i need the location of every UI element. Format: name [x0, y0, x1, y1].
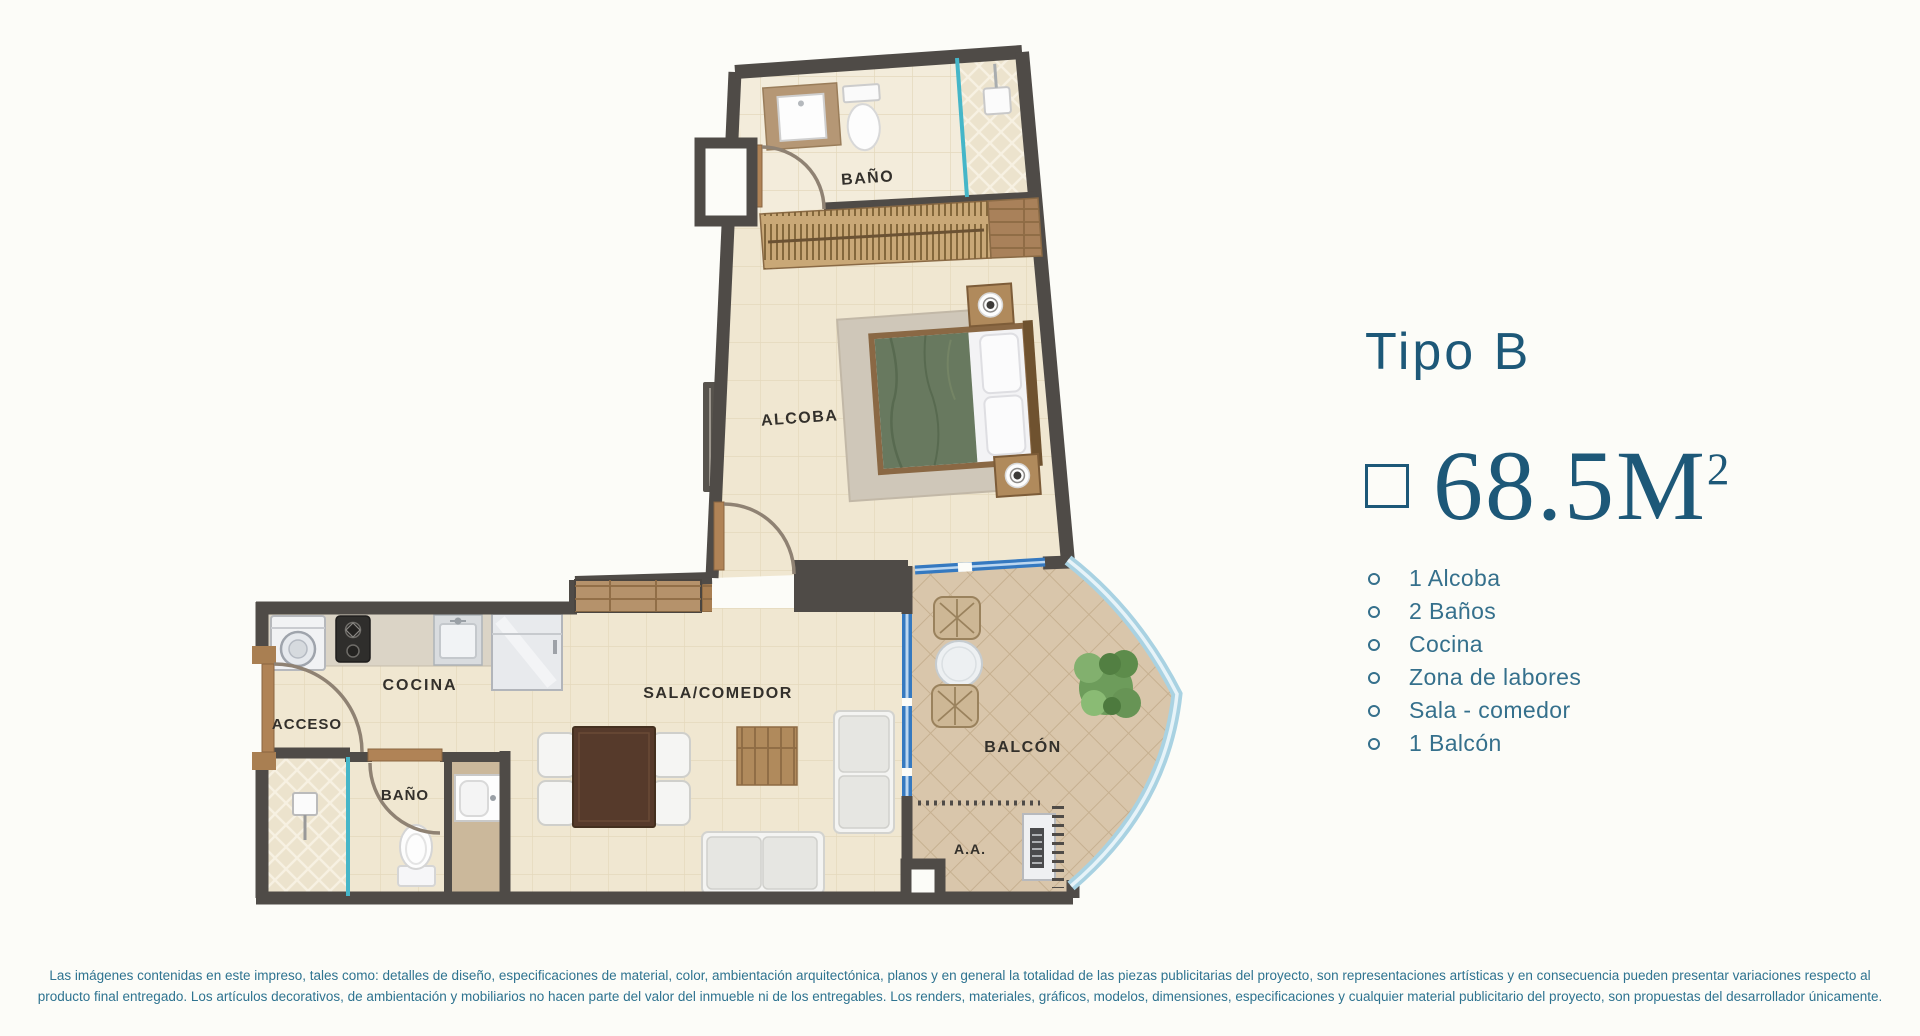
- disclaimer-line: Las imágenes contenidas en este impreso,…: [0, 965, 1920, 986]
- bullet-icon: [1368, 672, 1380, 684]
- bullet-icon: [1368, 639, 1380, 651]
- feature-label: Zona de labores: [1409, 664, 1581, 691]
- dining-chair: [652, 733, 690, 777]
- room-label-balcon: BALCÓN: [984, 737, 1061, 756]
- entry-door-frame: [252, 646, 276, 664]
- feature-label: Cocina: [1409, 631, 1483, 658]
- disclaimer-line: producto final entregado. Los artículos …: [0, 986, 1920, 1007]
- bedroom-door-leaf: [714, 502, 724, 570]
- pillow: [980, 333, 1022, 394]
- feature-item: 1 Alcoba: [1363, 562, 1581, 595]
- bullet-icon: [1368, 573, 1380, 585]
- stove-icon: [336, 616, 370, 662]
- sofa-right: [834, 711, 894, 833]
- dining-chair: [538, 781, 576, 825]
- balcony-chair: [932, 685, 978, 727]
- room-label-cocina: COCINA: [382, 677, 457, 694]
- entry-door-frame: [252, 752, 276, 770]
- dining-chair: [652, 781, 690, 825]
- room-label-acceso: ACCESO: [272, 716, 342, 733]
- washer-icon: [271, 616, 325, 670]
- dining-chair: [538, 733, 576, 777]
- area-row: 68.5M2: [1365, 436, 1731, 536]
- bullet-icon: [1368, 606, 1380, 618]
- balcony-table: [936, 641, 982, 687]
- balcony-chair: [934, 597, 980, 639]
- kitchen-sink-icon: [434, 615, 482, 665]
- fridge-icon: [492, 614, 562, 690]
- feature-label: 2 Baños: [1409, 598, 1496, 625]
- info-panel: Tipo B 68.5M2 1 Alcoba 2 Baños Cocina Zo…: [1363, 0, 1883, 960]
- entry-door-leaf: [262, 664, 274, 752]
- wall-notch: [700, 143, 752, 221]
- closet-sala: [575, 580, 701, 612]
- area-value: 68.5M2: [1433, 436, 1731, 536]
- wall-block: [794, 560, 908, 612]
- bullet-icon: [1368, 738, 1380, 750]
- feature-label: Sala - comedor: [1409, 697, 1571, 724]
- feature-item: Sala - comedor: [1363, 694, 1581, 727]
- feature-list: 1 Alcoba 2 Baños Cocina Zona de labores …: [1363, 562, 1581, 760]
- bed-blanket: [875, 333, 978, 469]
- bath-bottom-door-sill: [368, 749, 442, 761]
- room-label-bano-bottom: BAÑO: [381, 786, 429, 804]
- disclaimer: Las imágenes contenidas en este impreso,…: [0, 965, 1920, 1007]
- nightstand: [967, 283, 1014, 326]
- toilet-icon: [398, 825, 435, 886]
- feature-item: 1 Balcón: [1363, 727, 1581, 760]
- sala-balcony-sliding-door: [902, 614, 912, 796]
- plan-type-title: Tipo B: [1365, 324, 1531, 381]
- room-label-aa: A.A.: [954, 841, 986, 857]
- sofa-bottom: [702, 832, 824, 894]
- ac-unit-icon: [1023, 814, 1055, 880]
- area-square-icon: [1365, 464, 1409, 508]
- dining-table: [573, 727, 655, 827]
- dining-group: [538, 727, 690, 827]
- bullet-icon: [1368, 705, 1380, 717]
- area-superscript: 2: [1707, 445, 1732, 495]
- plant-icon: [1074, 650, 1141, 718]
- feature-item: 2 Baños: [1363, 595, 1581, 628]
- room-label-sala-comedor: SALA/COMEDOR: [643, 685, 793, 702]
- feature-item: Cocina: [1363, 628, 1581, 661]
- nightstand: [994, 454, 1041, 497]
- coffee-table: [737, 727, 797, 785]
- area-number: 68.5M: [1433, 430, 1707, 541]
- feature-label: 1 Balcón: [1409, 730, 1502, 757]
- pillow: [984, 395, 1026, 456]
- bathroom-sink-icon: [455, 775, 501, 821]
- feature-item: Zona de labores: [1363, 661, 1581, 694]
- wall-notch: [906, 864, 940, 898]
- feature-label: 1 Alcoba: [1409, 565, 1500, 592]
